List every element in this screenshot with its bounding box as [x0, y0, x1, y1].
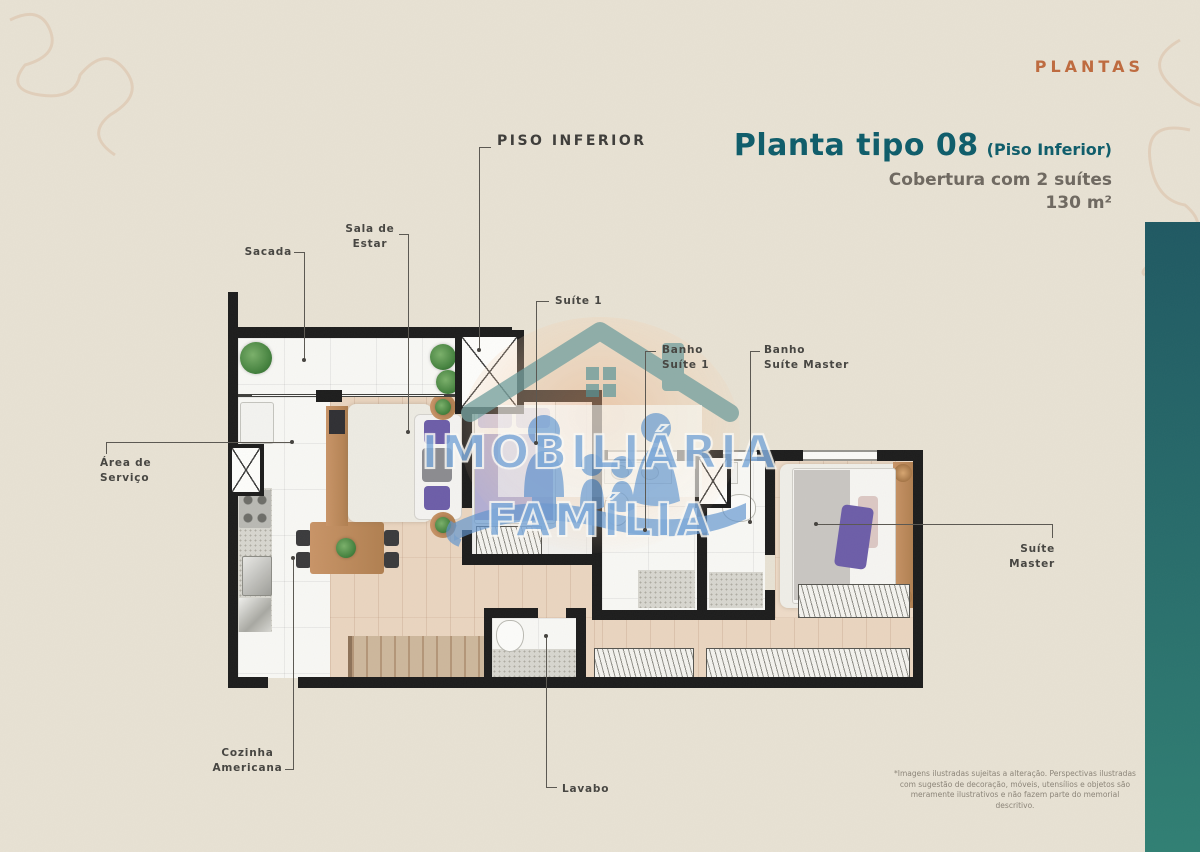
leader-dot [406, 430, 410, 434]
title-block: Planta tipo 08(Piso Inferior) Cobertura … [734, 128, 1112, 213]
leader-line [285, 769, 294, 770]
room-label-area-de-servico: Área de Serviço [100, 456, 151, 486]
leader-dot [643, 528, 647, 532]
wall [592, 610, 775, 620]
master-stool [894, 464, 912, 482]
plan-title-note: (Piso Inferior) [987, 140, 1112, 159]
wall [316, 390, 342, 402]
room-label-cozinha-americana: Cozinha Americana [205, 746, 290, 776]
stair-shaft [455, 330, 524, 414]
room-label-suite-master: Suíte Master [990, 542, 1055, 572]
dining-chair [296, 530, 311, 546]
leader-line [645, 351, 646, 530]
plant-icon [435, 399, 451, 415]
leader-line [750, 351, 760, 352]
plan-title-main: Planta tipo 08 [734, 128, 979, 163]
wall [484, 608, 538, 618]
leader-line [479, 147, 491, 148]
leader-line [293, 558, 294, 770]
leader-line [816, 524, 1053, 525]
disclaimer-text: *Imagens ilustradas sujeitas a alteração… [893, 769, 1137, 811]
brochure-page: PLANTAS Planta tipo 08(Piso Inferior) Co… [0, 0, 1200, 852]
leader-dot [814, 522, 818, 526]
room-label-lavabo: Lavabo [562, 782, 609, 797]
stairs [348, 636, 492, 682]
texture-swirl [0, 0, 170, 200]
room-label-banho-suite1: Banho Suíte 1 [662, 343, 709, 373]
watermark-line2: FAMÍLIA [310, 493, 890, 547]
dining-chair [384, 552, 399, 568]
leader-dot [748, 520, 752, 524]
master-closet [798, 584, 910, 618]
wall [576, 608, 586, 685]
plantas-tag: PLANTAS [1035, 57, 1144, 76]
shower-box [638, 570, 695, 608]
room-label-suite1: Suíte 1 [555, 294, 602, 309]
wall [765, 590, 775, 620]
wall [913, 450, 923, 688]
plan-title: Planta tipo 08(Piso Inferior) [734, 128, 1112, 163]
leader-line [750, 351, 751, 522]
lavabo-shower [492, 649, 576, 678]
washing-machine [240, 402, 274, 444]
leader-line [304, 252, 305, 360]
leader-line [546, 636, 547, 788]
leader-line [106, 442, 292, 443]
plant-icon [430, 344, 456, 370]
leader-line [408, 234, 409, 432]
leader-line [546, 787, 557, 788]
counter-steel [239, 598, 271, 632]
leader-line [1052, 524, 1053, 538]
leader-dot [477, 348, 481, 352]
wall [298, 677, 923, 688]
watermark-text: IMOBILIÁRIA FAMÍLIA [310, 425, 890, 547]
room-label-sala-de-estar: Sala de Estar [338, 222, 402, 252]
room-label-sacada: Sacada [240, 245, 292, 260]
floor-label: PISO INFERIOR [497, 133, 647, 149]
leader-line [106, 442, 107, 454]
leader-line [536, 301, 537, 443]
teal-sidebar [1145, 222, 1200, 852]
leader-dot [534, 441, 538, 445]
wall [484, 608, 492, 685]
kitchen-sink [242, 556, 272, 596]
leader-dot [544, 634, 548, 638]
wall [462, 554, 602, 565]
leader-line [479, 147, 480, 350]
balcony-glass-door [252, 395, 444, 396]
leader-dot [291, 556, 295, 560]
room-label-banho-suite-master: Banho Suíte Master [764, 343, 849, 373]
plan-area: 130 m² [734, 193, 1112, 213]
plan-subtitle: Cobertura com 2 suítes [734, 170, 1112, 190]
leader-line [645, 351, 656, 352]
wall [228, 677, 268, 688]
dining-chair [296, 552, 311, 568]
watermark-line1: IMOBILIÁRIA [310, 425, 890, 479]
service-duct [228, 444, 264, 496]
shower-box [709, 572, 763, 608]
leader-dot [302, 358, 306, 362]
sacada-floor [238, 338, 458, 396]
leader-dot [290, 440, 294, 444]
toilet [496, 620, 524, 652]
plant-icon [240, 342, 272, 374]
leader-line [536, 301, 549, 302]
